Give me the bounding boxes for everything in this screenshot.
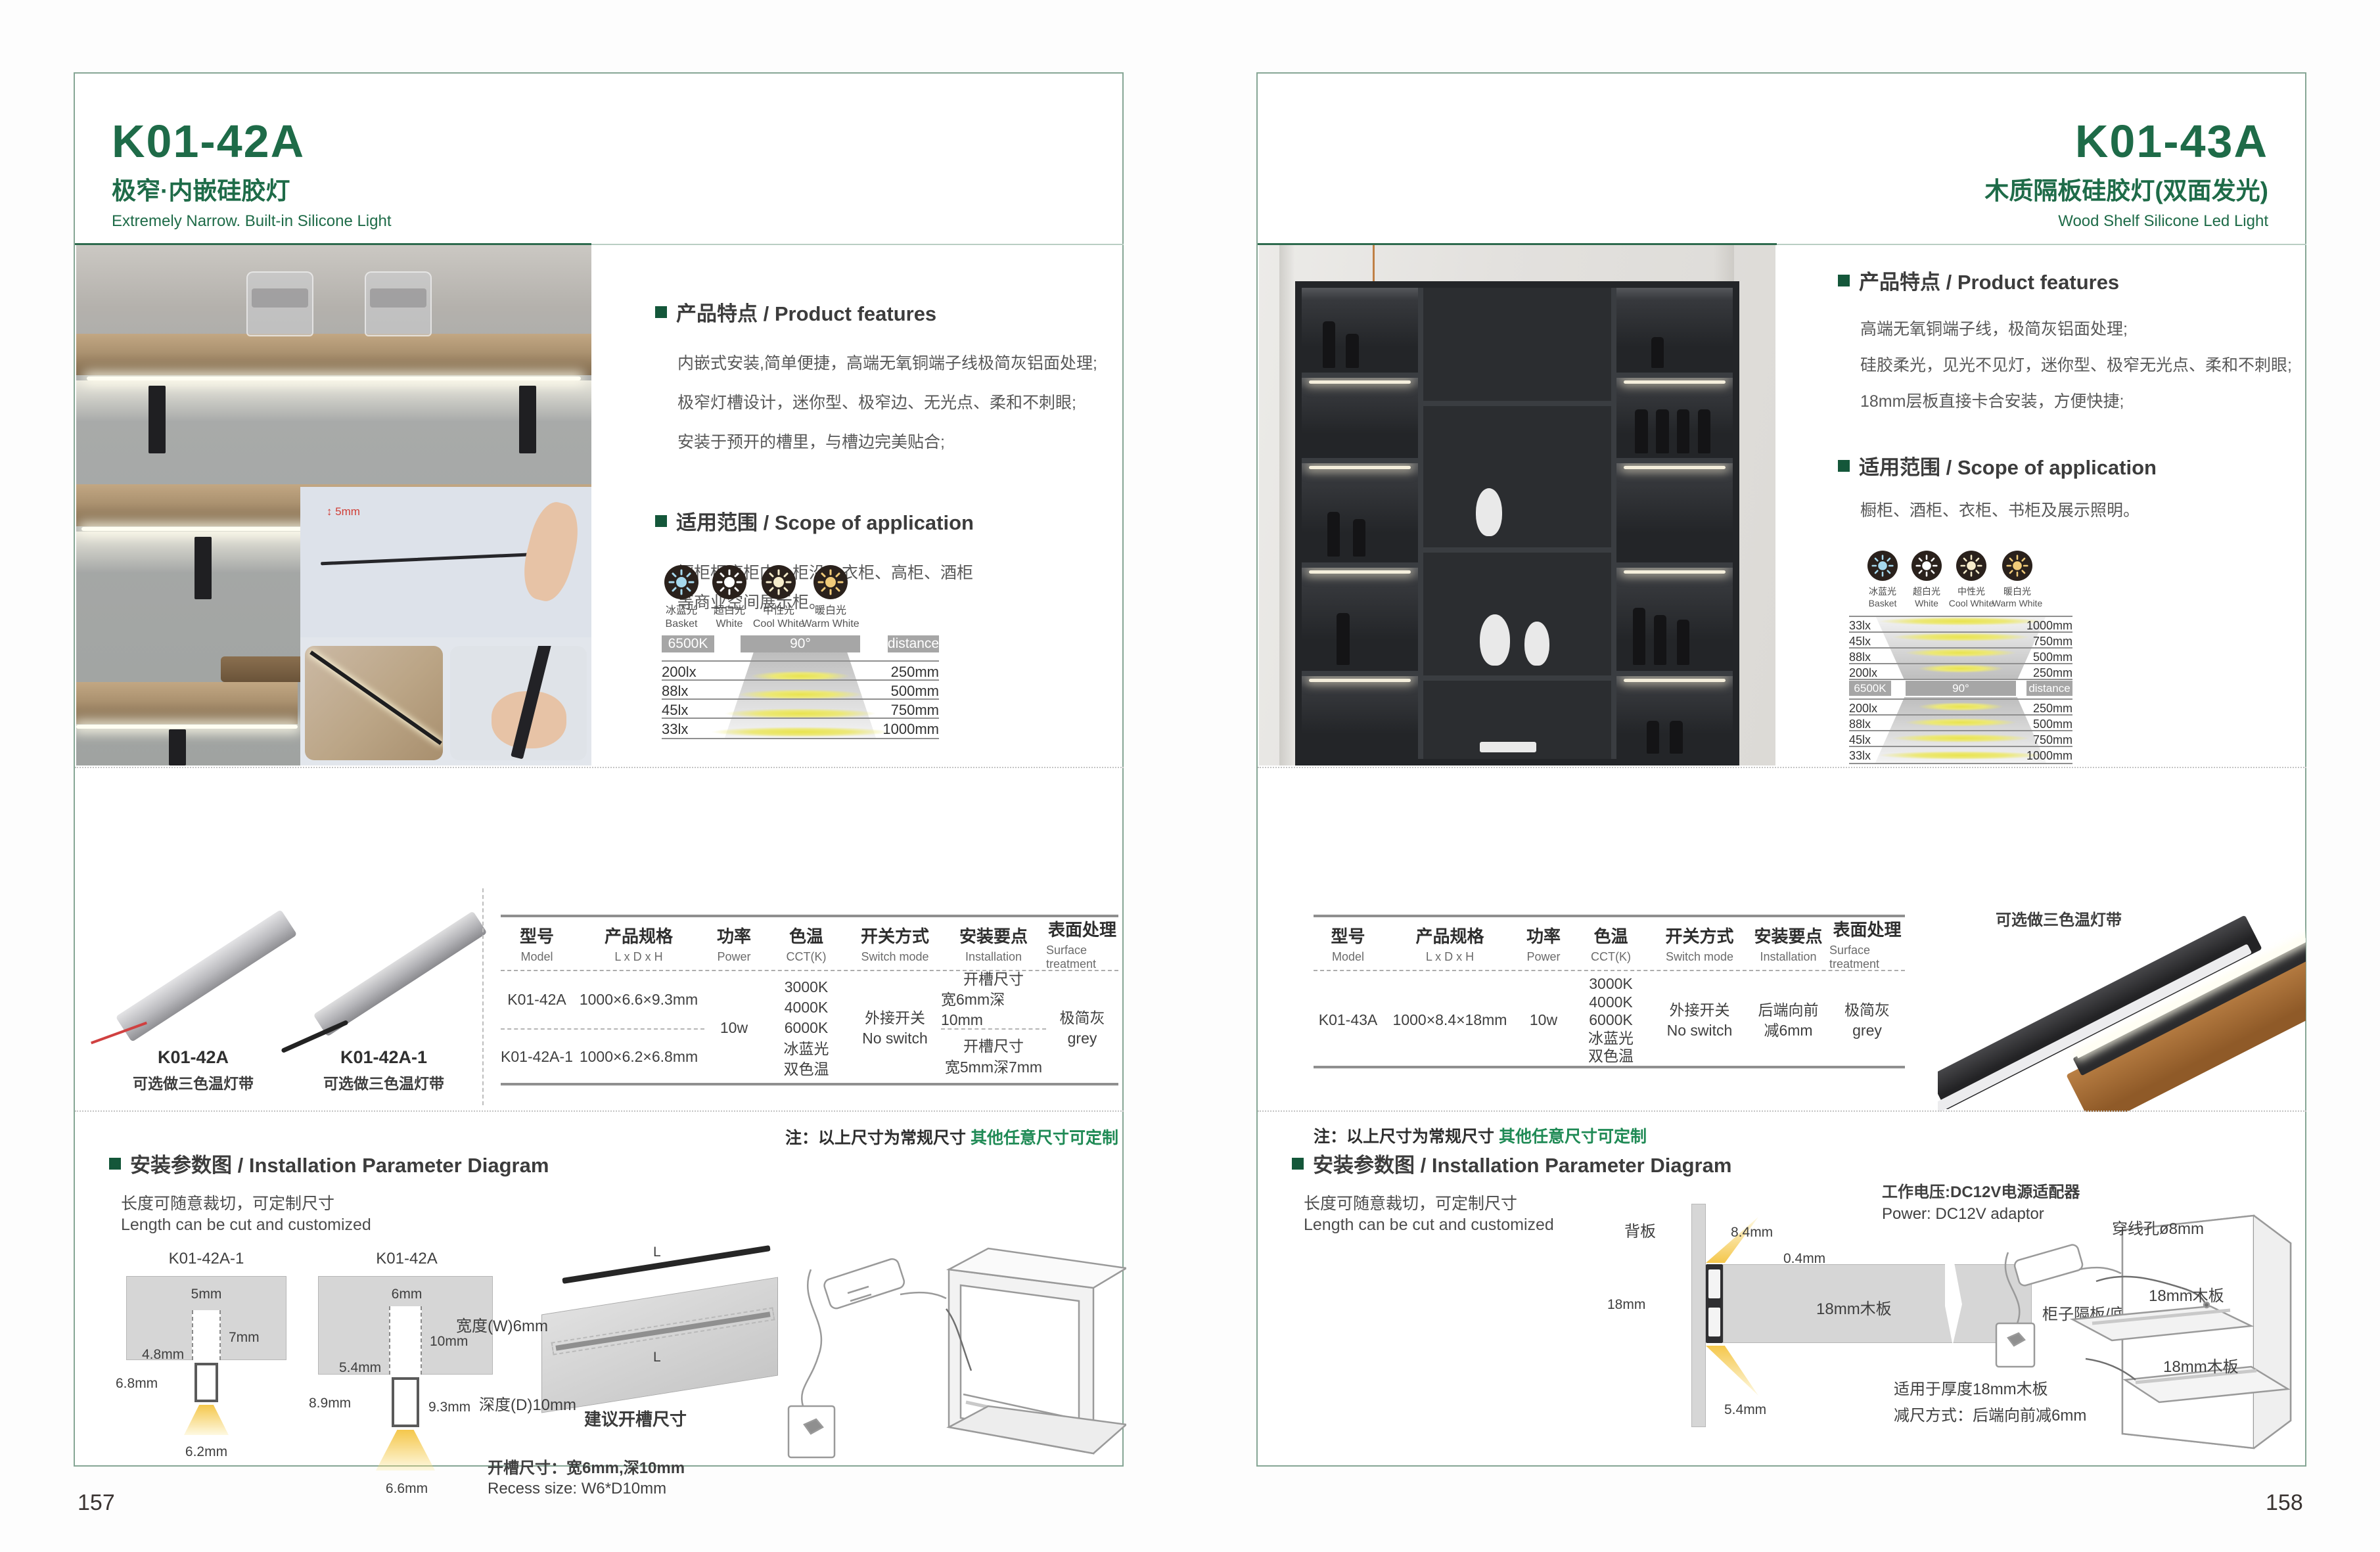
cell-install: 开槽尺寸宽6mm深10mm — [941, 971, 1046, 1028]
break-symbol-graphic — [1945, 1264, 1962, 1345]
container-graphic — [365, 271, 432, 336]
light-cone-down-graphic — [1706, 1346, 1758, 1396]
cabinet-compartment — [1616, 288, 1733, 373]
page-number-right: 158 — [2266, 1490, 2303, 1516]
cabinet-wiring-diagram: 穿线孔ø8mm 18mm木板 18mm木板 — [1994, 1204, 2302, 1467]
bullet-square-icon — [1838, 275, 1850, 286]
title-en: Wood Shelf Silicone Led Light — [1984, 214, 2268, 229]
install-heading: 安装参数图 / Installation Parameter Diagram — [109, 1149, 549, 1178]
features-heading: 产品特点 / Product features — [655, 297, 1115, 327]
bullet-square-icon — [655, 306, 667, 318]
feature-line: 18mm层板直接卡合安装，方便快捷; — [1860, 394, 2298, 410]
model-code: K01-42A — [112, 118, 392, 164]
render-model-label: K01-42A-1 — [292, 1047, 476, 1068]
wiring-cabinet-lineart — [785, 1230, 1126, 1519]
cut-note-cn: 长度可随意裁切，可定制尺寸 — [121, 1191, 334, 1214]
cell-switch: 外接开关No switch — [1652, 971, 1747, 1070]
sun-icon — [716, 569, 743, 595]
title-cn: 木质隔板硅胶灯(双面发光) — [1984, 179, 2268, 203]
row-divider — [501, 1028, 704, 1030]
sun-icon — [1960, 555, 1982, 577]
page-number-left: 157 — [78, 1490, 115, 1516]
cut-note-en: Length can be cut and customized — [121, 1216, 371, 1235]
cabinet-compartment — [1302, 463, 1418, 562]
bracket-graphic — [519, 386, 536, 453]
bracket-graphic — [169, 729, 186, 765]
section-divider — [1258, 767, 2306, 768]
cell-cct: 3000K4000K6000K冰蓝光双色温 — [764, 971, 849, 1085]
spec-table-body: K01-43A 1000×8.4×18mm 10w 3000K4000K6000… — [1314, 971, 1905, 1066]
scope-heading: 适用范围 / Scope of application — [1838, 451, 2298, 480]
cabinet-compartment — [1302, 288, 1418, 373]
light-distribution-chart: 6500K 90° distance 200lx250mm 88lx500mm … — [662, 635, 939, 739]
chart-row: 88lx500mm — [1849, 714, 2072, 731]
light-color-icon-warmwhite: 暖白光Warm White — [1987, 551, 2048, 609]
chart-row: 200lx250mm — [1849, 698, 2072, 716]
spec-table-body: K01-42A K01-42A-1 1000×6.6×9.3mm 1000×6.… — [501, 971, 1118, 1083]
chart-line — [1849, 679, 2072, 680]
board-label: 18mm木板 — [2163, 1354, 2239, 1377]
cabinet-compartment — [1423, 553, 1611, 675]
page-right: K01-43A 木质隔板硅胶灯(双面发光) Wood Shelf Silicon… — [1256, 72, 2306, 1467]
photo-inset-panel: ↕ 5mm — [300, 487, 591, 765]
light-color-icon-warmwhite: 暖白光Warm White — [794, 565, 867, 631]
cell-install: 后端向前减6mm — [1747, 971, 1829, 1070]
aluminum-profile-graphic — [313, 911, 488, 1036]
features-heading: 产品特点 / Product features — [1838, 265, 2298, 295]
chart-baseline — [1849, 763, 2072, 764]
bullet-square-icon — [1838, 460, 1850, 472]
model-code: K01-43A — [1984, 118, 2268, 164]
sun-icon — [2006, 555, 2028, 577]
feature-line: 安装于预开的槽里，与槽边完美贴合; — [677, 434, 1115, 451]
light-cone-graphic — [184, 1405, 229, 1435]
strip-thickness-label: ↕ 5mm — [327, 505, 360, 518]
cell-power: 10w — [1517, 971, 1570, 1070]
spec-table-header: 型号Model 产品规格L x D x H 功率Power 色温CCT(K) 开… — [1314, 917, 1905, 971]
inset-hand-thumb — [450, 646, 587, 760]
cut-note-cn: 长度可随意裁切，可定制尺寸 — [1304, 1191, 1517, 1214]
suggest-label: 建议开槽尺寸 — [584, 1406, 687, 1430]
wiring-cabinet-diagram — [785, 1230, 1126, 1519]
bullet-square-icon — [1292, 1158, 1304, 1170]
title-cn: 极窄·内嵌硅胶灯 — [112, 179, 392, 203]
container-lid — [370, 288, 426, 308]
profile-section-graphic — [392, 1377, 419, 1427]
cut-note-en: Length can be cut and customized — [1304, 1216, 1554, 1235]
render-caption: 可选做三色温灯带 — [1996, 907, 2122, 930]
feature-line: 极窄灯槽设计，迷你型、极窄边、无光点、柔和不刺眼; — [677, 395, 1115, 411]
inset-wood-thumb — [305, 646, 443, 760]
cell-power: 10w — [704, 971, 764, 1085]
page-left: K01-42A 极窄·内嵌硅胶灯 Extremely Narrow. Built… — [74, 72, 1124, 1467]
section-divider — [75, 1110, 1124, 1112]
marble-vein-graphic — [1279, 245, 1295, 765]
shelf-graphic — [76, 682, 298, 723]
chart-row: 33lx1000mm — [662, 718, 939, 738]
cabinet-compartment — [1423, 406, 1611, 547]
render-caption: 可选做三色温灯带 — [292, 1071, 476, 1093]
cell-cct: 3000K4000K6000K冰蓝光双色温 — [1570, 971, 1652, 1070]
cell-spec: 1000×8.4×18mm — [1383, 971, 1517, 1070]
cell-model: K01-43A — [1314, 971, 1383, 1070]
product-photo-display-cabinet — [1259, 245, 1775, 765]
container-graphic — [246, 271, 313, 336]
product-render-k01-43a: 可选做三色温灯带 — [1938, 895, 2306, 1112]
table-note: 注：以上尺寸为常规尺寸 其他任意尺寸可定制 — [501, 1125, 1118, 1149]
recess-board-diagram: L L 宽度(W)6mm 深度(D)10mm 建议开槽尺寸 开槽尺寸：宽6mm,… — [456, 1250, 785, 1473]
cabinet-compartment — [1616, 676, 1733, 759]
cell-surface: 极简灰grey — [1046, 971, 1118, 1085]
chart-row: 200lx250mm — [1849, 663, 2072, 680]
sun-icon — [766, 569, 792, 595]
cell-spec: 1000×6.2×6.8mm — [573, 1028, 704, 1085]
vertical-divider — [482, 888, 484, 1105]
cell-switch: 外接开关No switch — [849, 971, 941, 1085]
chart-cct-bar: 6500K — [1849, 681, 1891, 696]
sun-icon — [817, 569, 844, 595]
features-section: 产品特点 / Product features 高端无氧铜端子线，极简灰铝面处理… — [1838, 265, 2298, 519]
install-diagram-k01-42a-1: K01-42A-1 5mm 7mm 4.8mm 6.8mm 6.2mm — [108, 1250, 305, 1467]
cabinet-compartment — [1616, 463, 1733, 562]
sun-icon — [668, 569, 695, 595]
light-distribution-chart-double: 33lx1000mm 45lx750mm 88lx500mm 200lx250m… — [1849, 616, 2072, 764]
scope-heading: 适用范围 / Scope of application — [655, 506, 1115, 536]
cabinet-compartment — [1616, 568, 1733, 672]
back-panel-graphic — [1691, 1204, 1706, 1427]
chart-row: 88lx500mm — [662, 679, 939, 700]
render-caption: 可选做三色温灯带 — [101, 1071, 285, 1093]
spec-table: 型号Model 产品规格L x D x H 功率Power 色温CCT(K) 开… — [1314, 915, 1905, 1068]
inset-thin-strip-photo: ↕ 5mm — [300, 487, 591, 637]
install-heading: 安装参数图 / Installation Parameter Diagram — [1292, 1149, 1731, 1178]
table-note: 注：以上尺寸为常规尺寸 其他任意尺寸可定制 — [1314, 1124, 1647, 1147]
product-photo-shelf-lights: ↕ 5mm — [76, 245, 591, 765]
groove-graphic — [192, 1310, 221, 1360]
cabinet-compartment — [1302, 676, 1418, 759]
hand-graphic — [516, 498, 585, 606]
hanging-cord-graphic — [1373, 245, 1375, 281]
shelf-graphic — [76, 334, 591, 375]
cell-surface: 极简灰grey — [1829, 971, 1905, 1070]
cell-install: 开槽尺寸宽5mm深7mm — [941, 1028, 1046, 1085]
feature-line: 内嵌式安装,简单便捷，高端无氧铜端子线极简灰铝面处理; — [677, 355, 1115, 372]
render-model-label: K01-42A — [101, 1047, 285, 1068]
page-title: K01-42A 极窄·内嵌硅胶灯 Extremely Narrow. Built… — [112, 118, 392, 229]
chart-row: 88lx500mm — [1849, 647, 2072, 664]
profile-section-graphic — [1706, 1264, 1723, 1343]
chart-distance-bar: distance — [2026, 681, 2072, 696]
chart-row: 33lx1000mm — [1849, 746, 2072, 763]
strip-in-wood-graphic — [309, 650, 442, 745]
chart-angle-bar: 90° — [741, 635, 860, 652]
cell-model: K01-42A — [501, 971, 573, 1028]
page-title: K01-43A 木质隔板硅胶灯(双面发光) Wood Shelf Silicon… — [1984, 118, 2268, 229]
board-label: 18mm木板 — [2149, 1283, 2224, 1306]
profile-section-graphic — [195, 1363, 218, 1402]
cabinet-compartment — [1302, 568, 1418, 672]
bullet-square-icon — [109, 1158, 121, 1170]
chart-row: 45lx750mm — [1849, 730, 2072, 747]
led-strip-graphic — [76, 725, 298, 729]
chart-row: 33lx1000mm — [1849, 616, 2072, 633]
cell-spec: 1000×6.6×9.3mm — [573, 971, 704, 1028]
scope-line: 橱柜、酒柜、衣柜、书柜及展示照明。 — [1860, 503, 2298, 519]
chart-distance-bar: distance — [888, 635, 939, 652]
header-rule-light — [591, 244, 1124, 245]
title-en: Extremely Narrow. Built-in Silicone Ligh… — [112, 214, 392, 229]
row-divider — [941, 1028, 1046, 1030]
cabinet-compartment — [1302, 378, 1418, 458]
feature-line: 硅胶柔光，见光不见灯，迷你型、极窄无光点、柔和不刺眼; — [1860, 357, 2298, 374]
spec-table: 型号Model 产品规格L x D x H 功率Power 色温CCT(K) 开… — [501, 915, 1118, 1085]
led-strip-graphic — [87, 377, 582, 380]
cabinet-graphic — [1295, 281, 1739, 765]
header-rule-light — [1777, 244, 2306, 245]
cabinet-compartment — [1423, 288, 1611, 401]
chart-row: 45lx750mm — [1849, 631, 2072, 649]
section-divider — [75, 767, 1124, 768]
sun-icon — [1915, 555, 1938, 577]
hole-label: 穿线孔ø8mm — [2112, 1216, 2204, 1239]
cabinet-lineart — [1994, 1204, 2302, 1467]
power-note-cn: 工作电压:DC12V电源适配器 — [1882, 1179, 2080, 1202]
light-cone-graphic — [376, 1430, 435, 1471]
cabinet-compartment — [1616, 378, 1733, 458]
spec-table-header: 型号Model 产品规格L x D x H 功率Power 色温CCT(K) 开… — [501, 917, 1118, 971]
cabinet-compartment — [1423, 681, 1611, 759]
product-render-k01-42a-1: K01-42A-1 可选做三色温灯带 — [292, 862, 476, 1099]
groove-graphic — [389, 1306, 422, 1375]
bracket-graphic — [149, 386, 166, 453]
chart-angle-bar: 90° — [1906, 681, 2016, 696]
container-lid — [252, 288, 308, 308]
product-render-k01-42a: K01-42A 可选做三色温灯带 — [101, 862, 285, 1099]
bracket-graphic — [195, 537, 212, 599]
section-divider — [1258, 1110, 2306, 1112]
chart-baseline — [662, 738, 939, 739]
sun-icon — [1871, 555, 1894, 577]
bullet-square-icon — [655, 515, 667, 527]
feature-line: 高端无氧铜端子线，极简灰铝面处理; — [1860, 321, 2298, 338]
chart-row: 45lx750mm — [662, 698, 939, 719]
catalog-spread: K01-42A 极窄·内嵌硅胶灯 Extremely Narrow. Built… — [0, 0, 2380, 1552]
cell-model: K01-42A-1 — [501, 1028, 573, 1085]
strip-graphic — [562, 1245, 770, 1284]
chart-cct-bar: 6500K — [662, 635, 714, 652]
chart-row: 200lx250mm — [662, 660, 939, 681]
